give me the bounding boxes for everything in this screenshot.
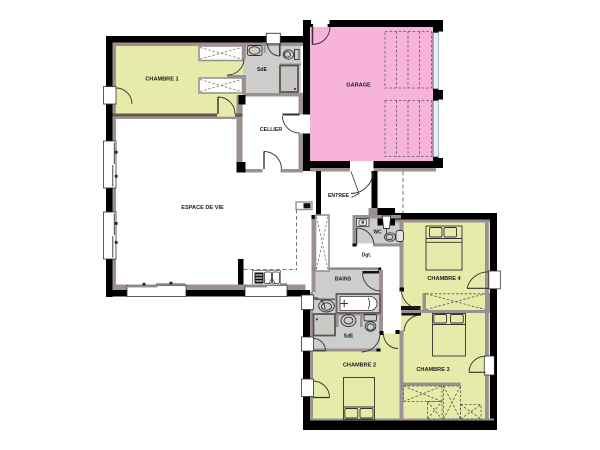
svg-text:CELLIER: CELLIER	[260, 127, 282, 133]
svg-text:SdE: SdE	[257, 67, 268, 73]
svg-text:CHAMBRE 3: CHAMBRE 3	[416, 367, 449, 373]
svg-text:SdE: SdE	[344, 334, 354, 340]
svg-text:GARAGE: GARAGE	[346, 83, 371, 89]
svg-text:Dgt.: Dgt.	[362, 253, 372, 259]
svg-text:BAINS: BAINS	[335, 277, 352, 283]
svg-text:CHAMBRE 1: CHAMBRE 1	[145, 77, 178, 83]
svg-text:CHAMBRE 4: CHAMBRE 4	[427, 276, 461, 282]
svg-text:CHAMBRE 2: CHAMBRE 2	[343, 363, 376, 369]
svg-text:ENTREE: ENTREE	[328, 193, 350, 199]
svg-text:WC: WC	[373, 230, 382, 236]
svg-text:ESPACE DE VIE: ESPACE DE VIE	[181, 205, 224, 211]
